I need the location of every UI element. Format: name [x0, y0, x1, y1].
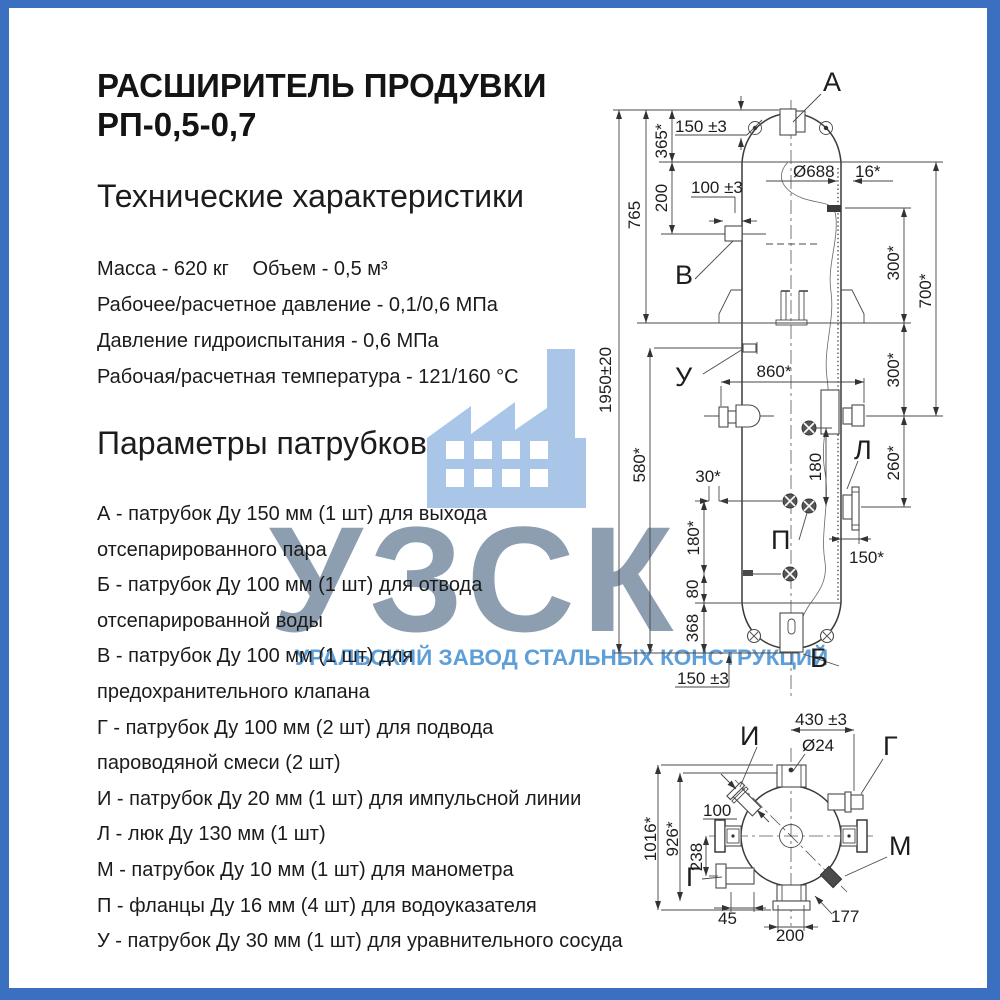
plan-label-g-top: Г	[883, 731, 898, 761]
plan-dimension-lines	[658, 730, 854, 931]
dim-dia-24: Ø24	[802, 736, 834, 755]
dim-860: 860*	[757, 362, 792, 381]
nozzle-g-left	[704, 405, 774, 427]
dim-150-manhole: 150*	[849, 548, 884, 567]
dim-300-upper: 300*	[884, 245, 903, 280]
nozzle-item-a: А - патрубок Ду 150 мм (1 шт) для выхода…	[97, 497, 602, 568]
dim-180-left: 180*	[684, 520, 703, 555]
dim-100-side: 100 ±3	[691, 178, 743, 197]
port-label-p: П	[771, 525, 790, 555]
dim-200: 200	[652, 184, 671, 212]
specs-heading: Технические характеристики	[97, 178, 524, 215]
dim-overall-height: 1950±20	[596, 347, 615, 413]
spec-mass: Масса - 620 кг	[97, 251, 229, 287]
dim-238: 238	[687, 843, 706, 871]
spec-sheet-page: УЗСК УРАЛЬСКИЙ ЗАВОД СТАЛЬНЫХ КОНСТРУКЦИ…	[0, 0, 1000, 1000]
plan-nozzle-top	[777, 765, 806, 787]
nozzle-g-right	[821, 390, 864, 434]
plan-nozzle-i	[727, 782, 764, 819]
dim-180-center: 180	[806, 453, 825, 481]
plan-label-m: М	[889, 831, 912, 861]
front-view: А Б В У Л П 1950±20 765 580* 365* 200 15…	[596, 67, 943, 696]
spec-line-hydro: Давление гидроиспытания - 0,6 МПа	[97, 323, 519, 359]
page-title: РАСШИРИТЕЛЬ ПРОДУВКИ РП-0,5-0,7	[97, 66, 546, 144]
gauge-flange	[802, 421, 816, 435]
nozzle-item-m: М - патрубок Ду 10 мм (1 шт) для маномет…	[97, 853, 602, 889]
nozzle-item-u: У - патрубок Ду 30 мм (1 шт) для уравнит…	[97, 924, 602, 960]
dim-dia-688: Ø688	[793, 162, 835, 181]
nozzle-item-v: В - патрубок Ду 100 мм (1 шт) для предох…	[97, 639, 602, 710]
dim-368: 368	[683, 614, 702, 642]
nozzle-item-p: П - фланцы Ду 16 мм (4 шт) для водоуказа…	[97, 889, 602, 925]
plan-nozzle-right	[841, 820, 867, 852]
nozzle-item-i: И - патрубок Ду 20 мм (1 шт) для импульс…	[97, 782, 602, 818]
dim-150-bottom: 150 ±3	[677, 669, 729, 688]
spec-line-temperature: Рабочая/расчетная температура - 121/160 …	[97, 359, 519, 395]
title-line-1: РАСШИРИТЕЛЬ ПРОДУВКИ	[97, 67, 546, 104]
title-line-2: РП-0,5-0,7	[97, 106, 256, 143]
dim-300-lower: 300*	[884, 352, 903, 387]
dim-1016: 1016*	[641, 816, 660, 861]
dim-260: 260*	[884, 445, 903, 480]
spec-line-mass-volume: Масса - 620 кг Объем - 0,5 м³	[97, 251, 519, 287]
port-label-v: В	[675, 260, 693, 290]
dim-200-plan: 200	[776, 926, 804, 945]
dim-580: 580*	[630, 447, 649, 482]
dim-700: 700*	[916, 273, 935, 308]
dim-150-top: 150 ±3	[675, 117, 727, 136]
nozzle-item-l: Л - люк Ду 130 мм (1 шт)	[97, 817, 602, 853]
nozzle-u	[703, 342, 757, 374]
dim-100-plan: 100	[703, 801, 731, 820]
specs-list: Масса - 620 кг Объем - 0,5 м³ Рабочее/ра…	[97, 251, 519, 395]
dim-177: 177	[831, 907, 859, 926]
nozzle-item-g: Г - патрубок Ду 100 мм (2 шт) для подвод…	[97, 711, 602, 782]
gauge-flange	[783, 494, 797, 508]
dim-926: 926*	[663, 821, 682, 856]
leader-m	[845, 857, 887, 876]
plan-view: И Г М Г 430 ±3 Ø24 100 1016* 926* 238 45…	[641, 710, 912, 945]
port-label-b: Б	[810, 643, 828, 673]
spec-line-pressure: Рабочее/расчетное давление - 0,1/0,6 МПа	[97, 287, 519, 323]
spec-volume: Объем - 0,5 м³	[252, 258, 387, 280]
plan-nozzle-m	[820, 866, 841, 887]
dim-765: 765	[625, 201, 644, 229]
dim-16: 16*	[855, 162, 881, 181]
port-label-a: А	[823, 67, 841, 97]
port-label-l: Л	[854, 435, 872, 465]
gauge-flange	[783, 567, 797, 581]
nozzle-params-heading: Параметры патрубков	[97, 425, 427, 462]
plan-label-i: И	[740, 721, 759, 751]
nozzle-a	[780, 94, 821, 135]
dim-365: 365*	[652, 123, 671, 158]
gauge-flange	[802, 499, 816, 513]
port-label-u: У	[675, 362, 693, 392]
plan-nozzle-g-topright	[828, 759, 883, 812]
plan-nozzle-left	[715, 820, 741, 852]
wall-stub	[743, 570, 753, 576]
nozzle-item-b: Б - патрубок Ду 100 мм (1 шт) для отвода…	[97, 568, 602, 639]
dim-30: 30*	[695, 467, 721, 486]
dim-45: 45	[718, 909, 737, 928]
leader-i	[740, 747, 757, 787]
manhole-l	[843, 461, 859, 530]
dim-80: 80	[683, 580, 702, 599]
support-brackets	[719, 290, 864, 325]
nozzle-params-list: А - патрубок Ду 150 мм (1 шт) для выхода…	[97, 497, 602, 960]
dim-430: 430 ±3	[795, 710, 847, 729]
